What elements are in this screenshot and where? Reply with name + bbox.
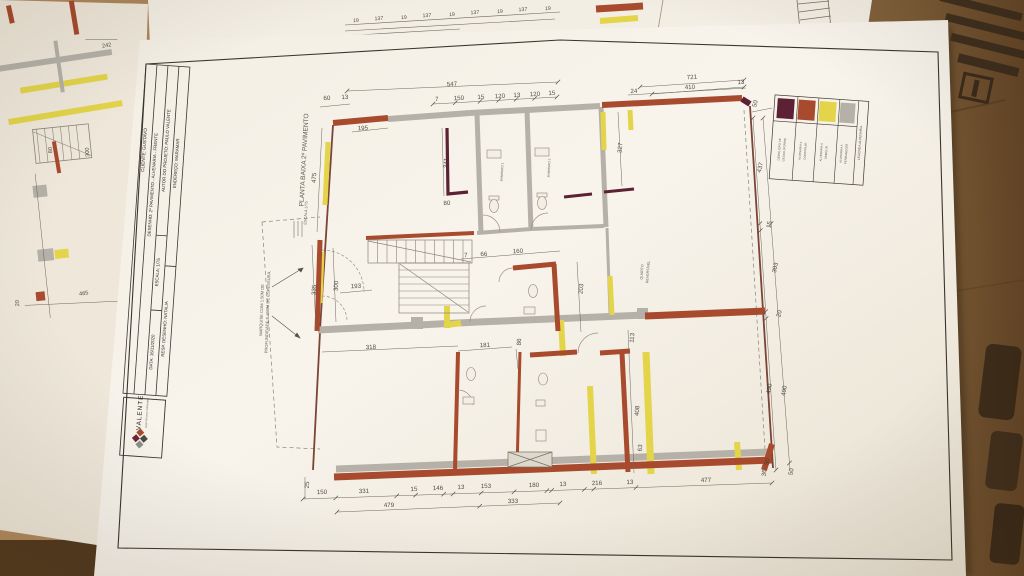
photo-vignette <box>0 0 1024 576</box>
scene-svg: 2428030046520 1913719137191371913719 CLI… <box>0 0 1024 576</box>
photo-of-floor-plans: 2428030046520 1913719137191371913719 CLI… <box>0 0 1024 576</box>
